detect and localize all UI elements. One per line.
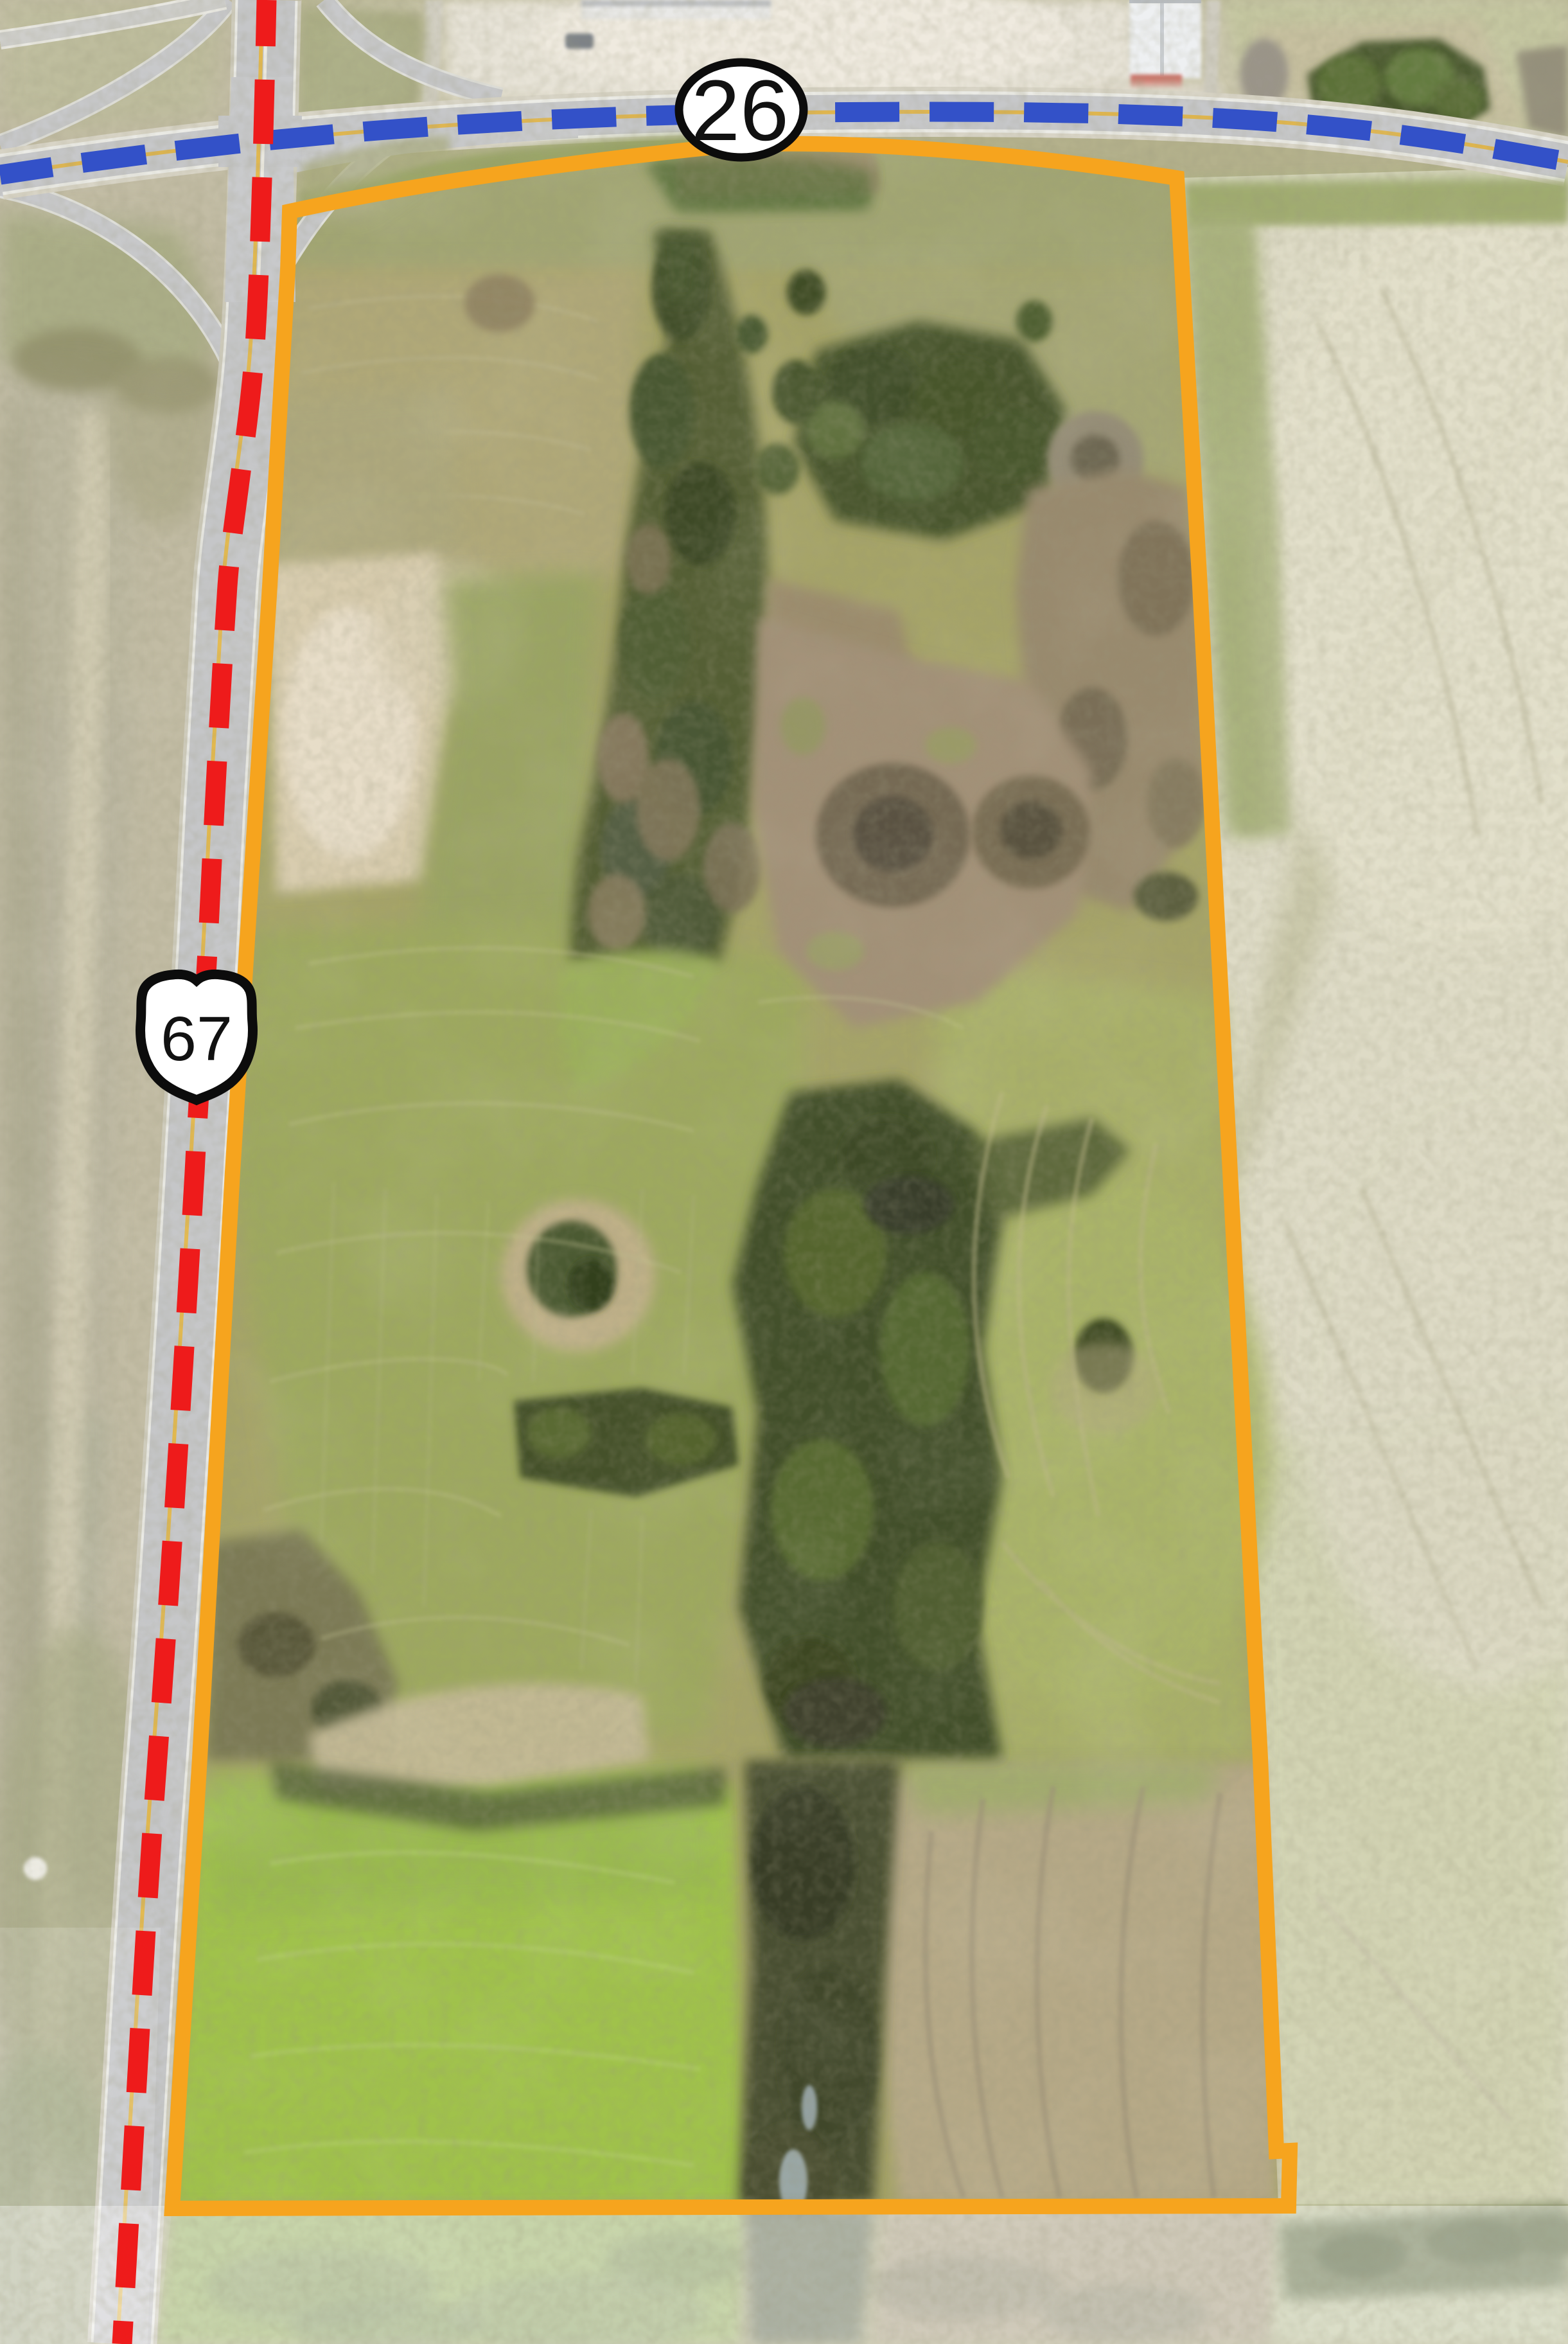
svg-text:26: 26	[691, 63, 789, 159]
svg-text:67: 67	[161, 1004, 233, 1074]
